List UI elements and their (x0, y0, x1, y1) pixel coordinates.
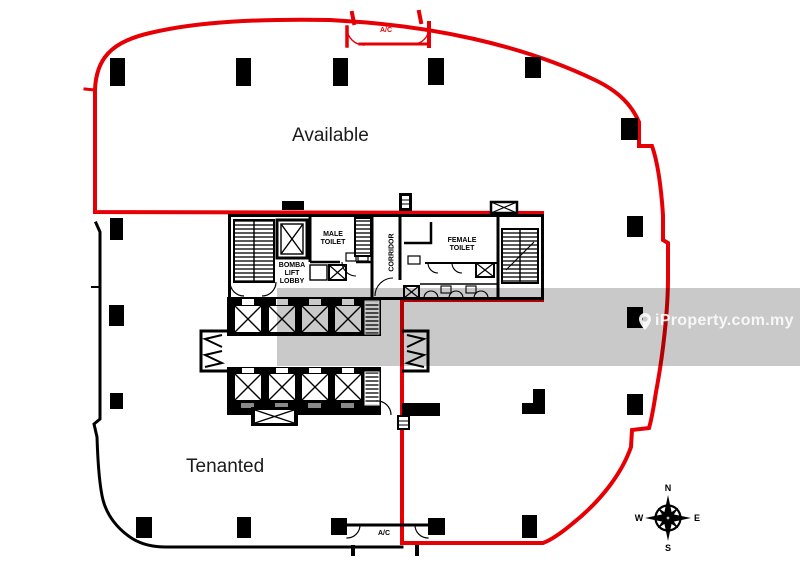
compass-rose-icon: N S W E (635, 483, 700, 553)
compass-south-label: S (665, 543, 671, 553)
watermark-brand-text: iProperty.com.my (655, 312, 794, 330)
electrical-riser-marker (399, 193, 412, 211)
location-pin-icon (639, 313, 651, 330)
floor-plan-drawing: N S W E (0, 0, 800, 574)
duct-marker (282, 201, 304, 210)
compass-west-label: W (635, 513, 644, 523)
stair-east-icon (502, 229, 538, 283)
bomba-lift-icon (277, 201, 307, 258)
core-southeast-details (376, 401, 440, 429)
ac-top-label: A/C (374, 27, 398, 35)
lift-bank-lower (227, 367, 381, 426)
compass-east-label: E (694, 513, 700, 523)
corridor-label: CORRIDOR (389, 223, 396, 283)
tenanted-area-label: Tenanted (186, 456, 264, 478)
ac-duct-marker (491, 202, 517, 213)
male-toilet-label: MALE TOILET (311, 231, 355, 247)
ac-bottom-label: A/C (372, 530, 396, 538)
female-toilet-label: FEMALE TOILET (436, 237, 488, 253)
compass-north-label: N (665, 483, 672, 493)
riser-duct-icon (355, 218, 371, 256)
floor-plan-image: N S W E Available Tenanted MALE TOILET F… (0, 0, 800, 574)
watermark: iProperty.com.my (639, 312, 794, 330)
escape-stair-west-icon (201, 331, 227, 371)
available-area-label: Available (292, 125, 369, 147)
watermark-band: iProperty.com.my (277, 288, 800, 366)
bomba-lift-lobby-label: BOMBA LIFT LOBBY (270, 262, 314, 286)
